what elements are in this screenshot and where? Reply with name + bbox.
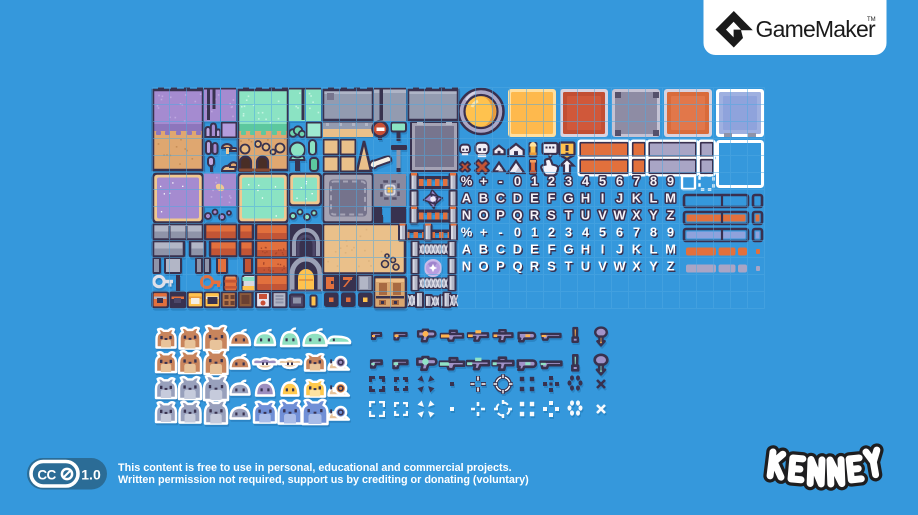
svg-text:J: J xyxy=(616,191,623,206)
svg-text:8: 8 xyxy=(650,225,657,240)
svg-text:V: V xyxy=(598,259,607,274)
svg-text:-: - xyxy=(498,174,502,189)
svg-text:-: - xyxy=(498,225,502,240)
svg-text:9: 9 xyxy=(667,174,674,189)
svg-text:H: H xyxy=(581,191,590,206)
svg-text:Y: Y xyxy=(649,208,658,223)
svg-text:%: % xyxy=(461,225,473,240)
svg-text:G: G xyxy=(563,191,573,206)
svg-text:3: 3 xyxy=(565,225,572,240)
svg-text:Y: Y xyxy=(649,259,658,274)
svg-text:D: D xyxy=(513,191,522,206)
svg-text:B: B xyxy=(479,242,488,257)
svg-text:Q: Q xyxy=(512,208,522,223)
svg-text:T: T xyxy=(565,208,573,223)
svg-text:Written permission not require: Written permission not required, support… xyxy=(118,474,529,486)
svg-text:+: + xyxy=(480,225,488,240)
svg-text:1: 1 xyxy=(531,225,538,240)
svg-text:R: R xyxy=(530,208,540,223)
svg-text:F: F xyxy=(548,242,556,257)
svg-text:6: 6 xyxy=(616,174,623,189)
svg-text:N: N xyxy=(462,259,471,274)
svg-text:%: % xyxy=(461,174,473,189)
svg-text:N: N xyxy=(462,208,471,223)
svg-text:W: W xyxy=(613,259,626,274)
svg-text:R: R xyxy=(530,259,540,274)
svg-text:M: M xyxy=(665,242,676,257)
svg-text:E: E xyxy=(530,242,539,257)
svg-text:3: 3 xyxy=(565,174,572,189)
svg-text:M: M xyxy=(665,191,676,206)
svg-text:5: 5 xyxy=(599,225,606,240)
svg-text:H: H xyxy=(581,242,590,257)
svg-text:S: S xyxy=(547,208,556,223)
svg-text:U: U xyxy=(581,208,590,223)
svg-text:B: B xyxy=(479,191,488,206)
svg-text:L: L xyxy=(650,191,658,206)
svg-text:7: 7 xyxy=(633,174,640,189)
svg-text:A: A xyxy=(462,191,472,206)
svg-text:Q: Q xyxy=(512,259,522,274)
svg-text:5: 5 xyxy=(599,174,606,189)
svg-text:Z: Z xyxy=(667,208,675,223)
svg-text:W: W xyxy=(613,208,626,223)
svg-text:K: K xyxy=(632,242,642,257)
svg-text:U: U xyxy=(581,259,590,274)
svg-text:C: C xyxy=(496,242,506,257)
svg-text:+: + xyxy=(480,174,488,189)
svg-text:A: A xyxy=(462,242,472,257)
svg-text:0: 0 xyxy=(514,225,521,240)
svg-text:1: 1 xyxy=(531,174,538,189)
svg-text:O: O xyxy=(478,208,488,223)
svg-text:V: V xyxy=(598,208,607,223)
svg-text:2: 2 xyxy=(548,174,555,189)
svg-text:4: 4 xyxy=(582,174,590,189)
svg-text:L: L xyxy=(650,242,658,257)
svg-text:P: P xyxy=(496,259,505,274)
svg-text:0: 0 xyxy=(514,174,521,189)
svg-text:X: X xyxy=(632,208,641,223)
svg-text:TM: TM xyxy=(867,17,876,23)
svg-text:D: D xyxy=(513,242,522,257)
svg-text:6: 6 xyxy=(616,225,623,240)
svg-text:C: C xyxy=(496,191,506,206)
svg-text:CC: CC xyxy=(37,467,56,482)
svg-text:I: I xyxy=(601,242,605,257)
svg-text:GameMaker: GameMaker xyxy=(756,16,876,42)
svg-text:F: F xyxy=(548,191,556,206)
svg-text:This content is free to use in: This content is free to use in personal,… xyxy=(118,462,512,474)
svg-text:2: 2 xyxy=(548,225,555,240)
svg-text:1.0: 1.0 xyxy=(81,467,101,483)
svg-text:S: S xyxy=(547,259,556,274)
svg-text:4: 4 xyxy=(582,225,590,240)
svg-text:O: O xyxy=(478,259,488,274)
svg-text:T: T xyxy=(565,259,573,274)
svg-text:P: P xyxy=(496,208,505,223)
svg-text:Z: Z xyxy=(667,259,675,274)
svg-text:7: 7 xyxy=(633,225,640,240)
svg-text:X: X xyxy=(632,259,641,274)
svg-text:G: G xyxy=(563,242,573,257)
svg-text:K: K xyxy=(632,191,642,206)
svg-text:9: 9 xyxy=(667,225,674,240)
svg-text:8: 8 xyxy=(650,174,657,189)
svg-text:I: I xyxy=(601,191,605,206)
svg-text:J: J xyxy=(616,242,623,257)
svg-text:E: E xyxy=(530,191,539,206)
